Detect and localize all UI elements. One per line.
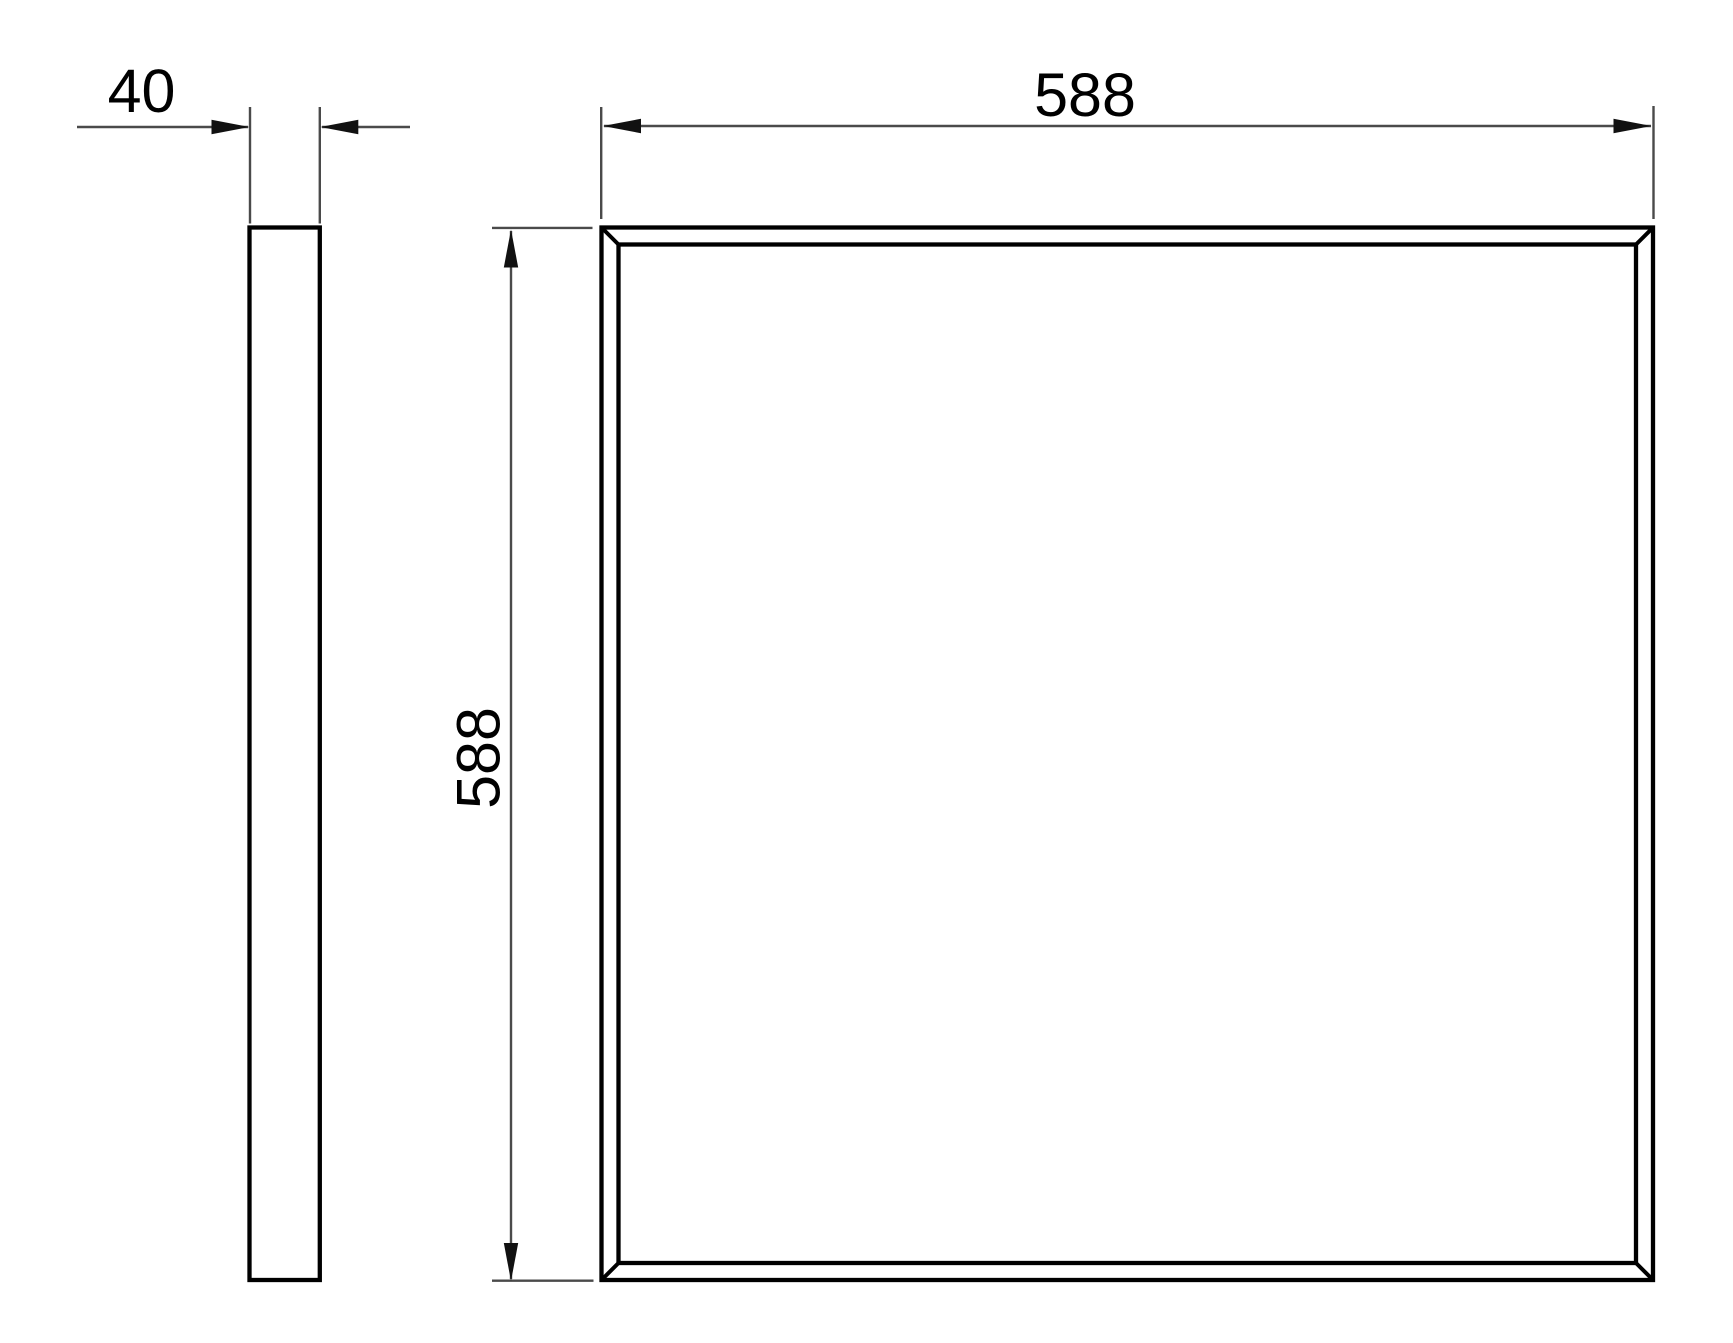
svg-text:588: 588 <box>445 707 513 809</box>
svg-text:588: 588 <box>1034 61 1136 129</box>
svg-text:40: 40 <box>108 57 176 125</box>
